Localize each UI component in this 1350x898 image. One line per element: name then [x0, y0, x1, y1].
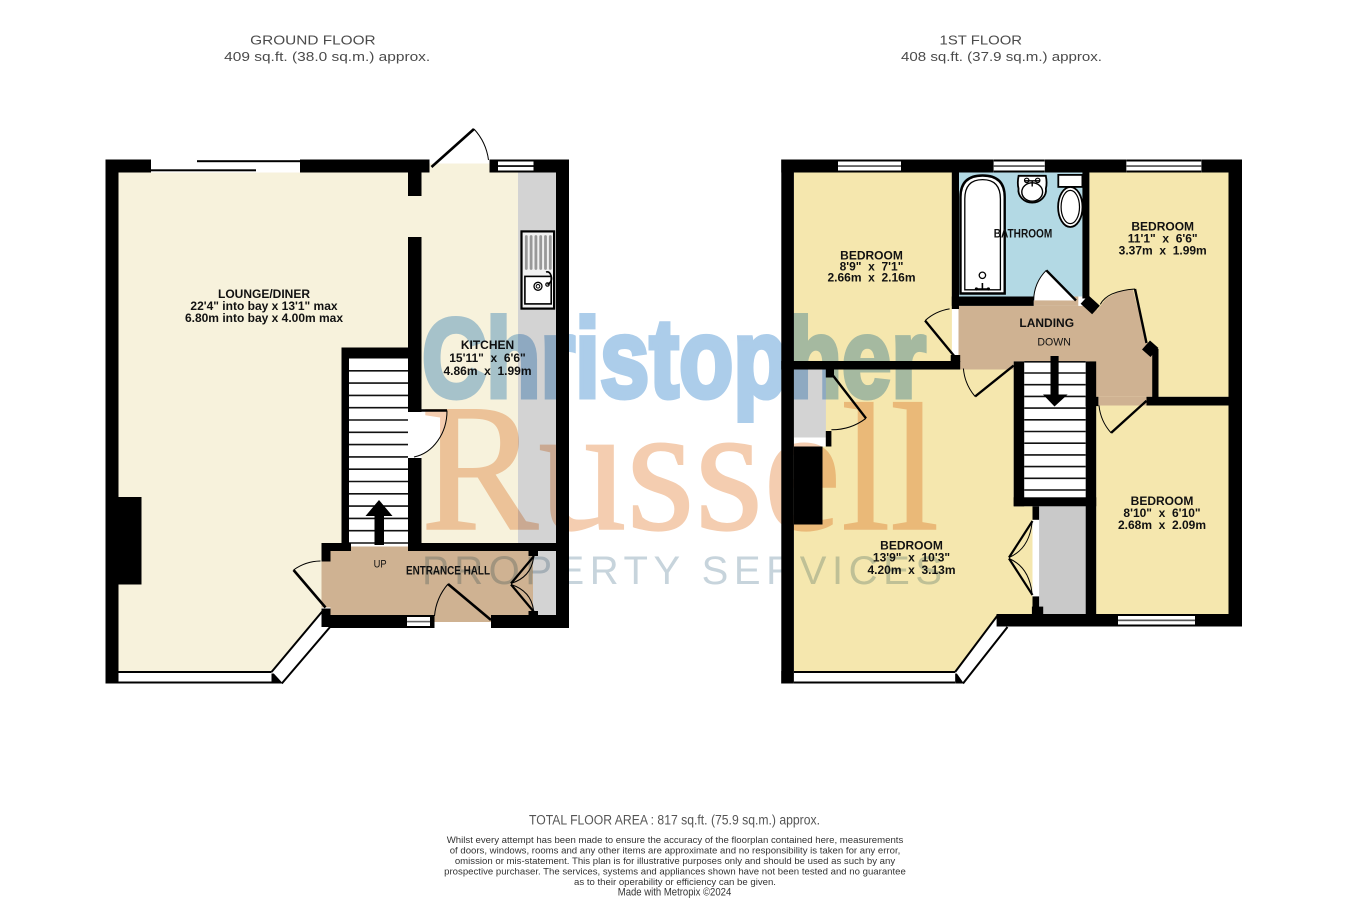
svg-text:Made with Metropix ©2024: Made with Metropix ©2024: [618, 887, 732, 898]
svg-text:prospective purchaser. The ser: prospective purchaser. The services, sys…: [444, 867, 906, 878]
svg-text:1ST FLOOR: 1ST FLOOR: [940, 32, 1023, 47]
svg-text:409 sq.ft. (38.0 sq.m.) approx: 409 sq.ft. (38.0 sq.m.) approx.: [224, 49, 430, 64]
svg-text:Russell: Russell: [421, 368, 939, 569]
svg-text:TOTAL FLOOR AREA : 817 sq.ft.: TOTAL FLOOR AREA : 817 sq.ft. (75.9 sq.m…: [529, 813, 820, 828]
svg-text:2.68m x 2.09m: 2.68m x 2.09m: [1118, 518, 1206, 532]
svg-text:2.66m x 2.16m: 2.66m x 2.16m: [827, 271, 915, 285]
svg-text:6.80m into bay x 4.00m max: 6.80m into bay x 4.00m max: [185, 311, 343, 325]
svg-text:UP: UP: [374, 559, 387, 571]
svg-text:of doors, windows, rooms and a: of doors, windows, rooms and any other i…: [450, 845, 901, 856]
svg-text:DOWN: DOWN: [1037, 337, 1071, 349]
svg-text:3.37m x 1.99m: 3.37m x 1.99m: [1119, 244, 1207, 258]
svg-text:GROUND FLOOR: GROUND FLOOR: [250, 32, 376, 47]
svg-text:omission or mis-statement. Thi: omission or mis-statement. This plan is …: [455, 856, 895, 867]
svg-text:LANDING: LANDING: [1019, 316, 1074, 330]
svg-text:Whilst every attempt has been: Whilst every attempt has been made to en…: [447, 835, 904, 846]
svg-text:BATHROOM: BATHROOM: [994, 226, 1053, 240]
svg-text:408 sq.ft. (37.9 sq.m.) approx: 408 sq.ft. (37.9 sq.m.) approx.: [901, 49, 1102, 64]
